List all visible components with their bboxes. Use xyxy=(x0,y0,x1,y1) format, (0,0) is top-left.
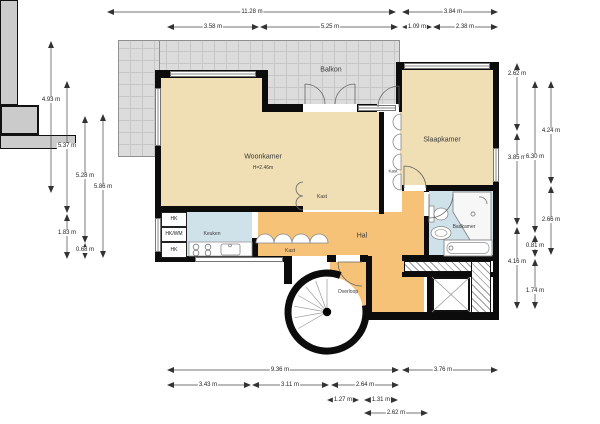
hall-label: Hal xyxy=(357,233,368,240)
dim-label: 9.36 m xyxy=(270,367,290,373)
dim-label: 3.58 m xyxy=(203,24,223,30)
dim-label: 3.43 m xyxy=(198,382,218,388)
dim-label: 2.66 m xyxy=(541,217,561,223)
hk-bottom-label: HK xyxy=(171,248,178,253)
living-room-label: Woonkamer xyxy=(244,154,282,161)
dim-label: 6.30 m xyxy=(525,154,545,160)
kitchen-label: Keuken xyxy=(204,231,221,237)
dim-label: 3.11 m xyxy=(280,382,300,388)
window-living-top xyxy=(170,71,256,77)
wall-right xyxy=(493,62,499,318)
bathroom-label: Badkamer xyxy=(453,224,476,230)
window-kitchen xyxy=(195,257,283,262)
dim-label: 4.93 m xyxy=(41,97,61,103)
dim-label: 2.38 m xyxy=(455,24,475,30)
wardrobe-strip xyxy=(0,0,18,105)
dim-label: 4.16 m xyxy=(507,259,527,265)
dim-label: 2.62 m xyxy=(386,410,406,416)
dim-label: 5.86 m xyxy=(93,184,113,190)
bathroom-floor xyxy=(429,190,493,256)
dim-label: 5.25 m xyxy=(320,24,340,30)
landing-label: Overloop xyxy=(338,289,358,295)
closet-box-hall xyxy=(0,105,39,135)
corridor-floor xyxy=(402,190,424,256)
wardrobe-strip-label: Kast xyxy=(388,169,397,174)
landing-floor xyxy=(330,262,366,312)
utility-closet-hk-wm: HK/WM xyxy=(161,227,187,242)
utility-closet-hk-top: HK xyxy=(161,212,187,227)
wall-bottom-right xyxy=(366,312,499,320)
door-opening-bedroom xyxy=(404,185,426,191)
living-room-floor xyxy=(161,78,266,210)
dim-label: 4.24 m xyxy=(541,128,561,134)
dim-label: 2.64 m xyxy=(355,382,375,388)
wall-stair-connect xyxy=(284,258,292,284)
closet-box-label: Kast xyxy=(317,194,327,200)
dim-label: 3.76 m xyxy=(433,367,453,373)
dim-label: 1.27 m xyxy=(333,397,353,403)
hall-floor xyxy=(258,212,424,256)
dim-label: 1.31 m xyxy=(371,397,391,403)
dim-label: 5.37 m xyxy=(57,143,77,149)
wall-closet-left xyxy=(379,104,384,214)
dim-label: 1.74 m xyxy=(525,288,545,294)
window-right xyxy=(493,148,499,182)
shaft-hatch-vertical xyxy=(471,261,491,313)
dim-label: 2.62 m xyxy=(507,71,527,77)
door-opening-bathroom xyxy=(424,192,429,216)
wall-landing-right xyxy=(366,256,372,312)
dim-label: 5.28 m xyxy=(75,173,95,179)
hk-top-label: HK xyxy=(171,217,178,222)
balcony-label: Balkon xyxy=(320,67,341,74)
bedroom-floor xyxy=(400,70,493,190)
floor-plan-canvas: HK HK/WM HK xyxy=(0,0,600,424)
window-living-balcony xyxy=(358,105,396,111)
hk-wm-label: HK/WM xyxy=(165,232,182,237)
door-opening-balcony xyxy=(303,104,357,112)
dim-label: 3.84 m xyxy=(443,9,463,15)
dim-label: 0.81 m xyxy=(525,243,545,249)
dim-label: 11.28 m xyxy=(240,9,263,15)
window-left-upper xyxy=(155,88,161,146)
door-opening-landing xyxy=(336,255,360,262)
dim-label: 1.83 m xyxy=(57,230,77,236)
dim-label: 1.09 m xyxy=(407,24,427,30)
bedroom-label: Slaapkamer xyxy=(423,137,460,144)
elevator-shaft-box xyxy=(432,277,470,312)
living-room-height-label: H=2.46m xyxy=(253,165,273,171)
utility-closet-hk-bottom: HK xyxy=(161,242,187,258)
wall-jog-balcony xyxy=(262,70,268,112)
window-bedroom-top xyxy=(404,63,490,69)
balcony-area-left xyxy=(118,40,160,157)
dim-label: 0.68 m xyxy=(75,247,95,253)
closet-hall-label: Kast xyxy=(285,248,295,254)
